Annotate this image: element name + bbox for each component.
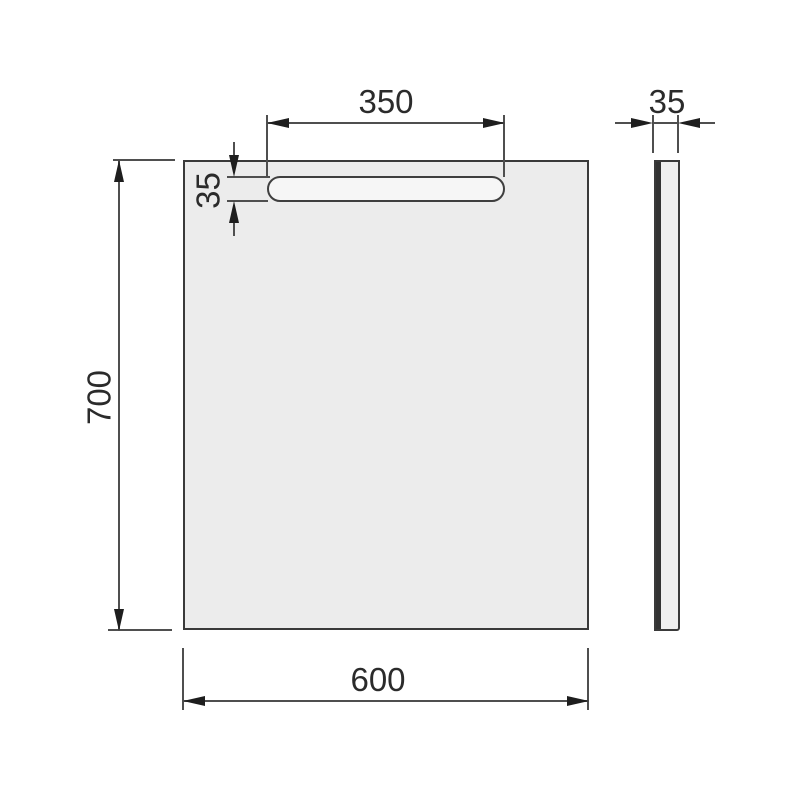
arrowhead-left bbox=[183, 696, 205, 706]
dimension-label-panel-width: 600 bbox=[328, 663, 428, 696]
light-bar bbox=[267, 176, 505, 202]
side-view-panel bbox=[654, 160, 680, 631]
technical-drawing: 350 35 700 600 35 bbox=[0, 0, 800, 800]
arrow-tail bbox=[699, 122, 715, 124]
arrowhead-down bbox=[229, 155, 239, 177]
dimension-line bbox=[183, 700, 589, 702]
dimension-label-light-bar-height: 35 bbox=[192, 161, 225, 221]
dimension-line bbox=[118, 160, 120, 631]
side-view-front-edge bbox=[656, 162, 661, 629]
arrowhead-up bbox=[229, 201, 239, 223]
dimension-line bbox=[267, 122, 505, 124]
arrowhead-left bbox=[267, 118, 289, 128]
arrowhead-right bbox=[483, 118, 505, 128]
arrowhead-up bbox=[114, 160, 124, 182]
dimension-label-panel-height: 700 bbox=[83, 358, 116, 438]
arrowhead-right bbox=[567, 696, 589, 706]
dimension-label-light-bar-width: 350 bbox=[336, 85, 436, 118]
dimension-label-panel-thickness: 35 bbox=[637, 85, 697, 118]
dimension-line bbox=[653, 122, 679, 124]
front-view-panel bbox=[183, 160, 589, 630]
arrowhead-down bbox=[114, 609, 124, 631]
